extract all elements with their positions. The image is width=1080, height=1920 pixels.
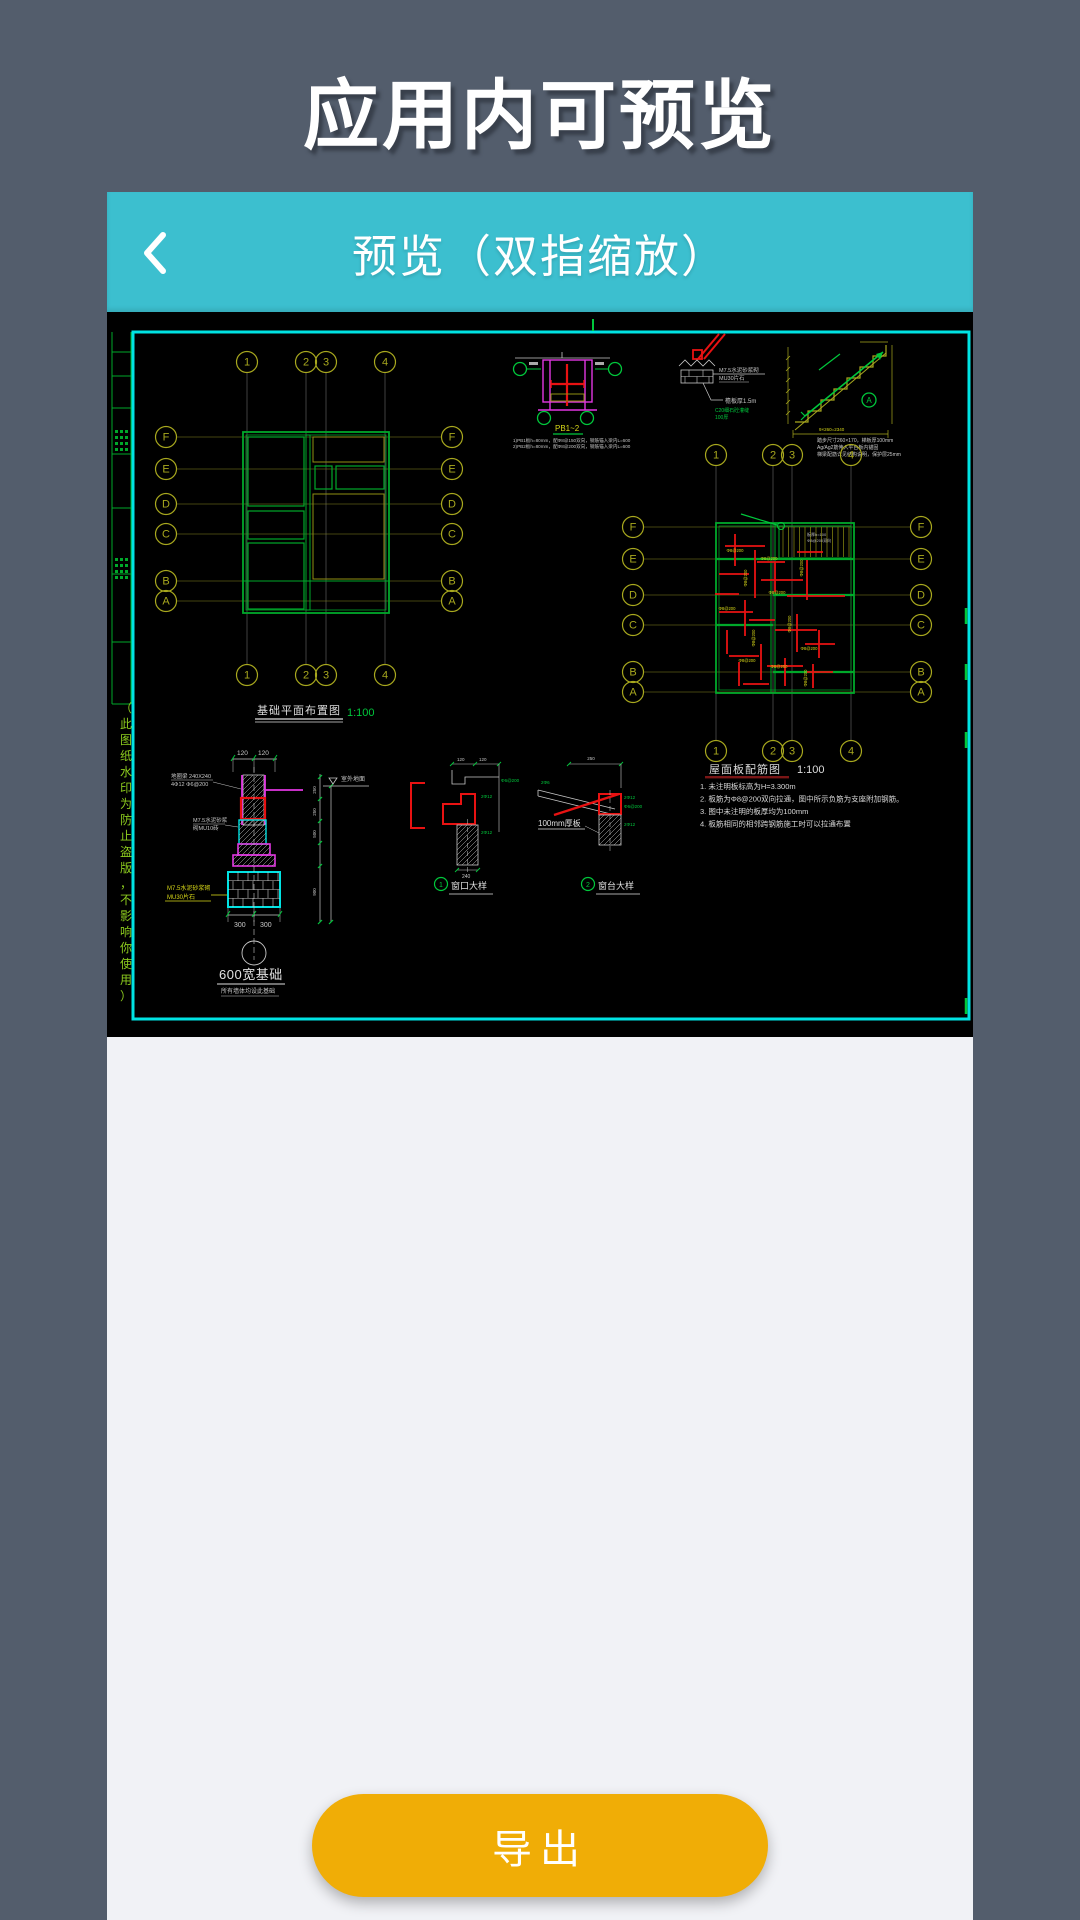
eave-detail: M7.5水泥砂浆砌MU30片石檐板厚1.5mC20细石砼灌缝100厚: [679, 334, 765, 421]
cad-text: 2)PB2板h=80mm，配Φ8@200双向，钢筋锚入梁内L=600: [513, 443, 631, 450]
cad-text: 3: [789, 746, 795, 758]
cad-text: B: [448, 576, 455, 588]
cad-text: B: [629, 667, 636, 679]
preview-header-title: 预览（双指缩放）: [352, 220, 728, 285]
watermark-char: 盗: [120, 844, 132, 859]
cad-rect: [120, 564, 123, 567]
cad-text: 板厚h=100: [807, 531, 827, 537]
watermark-char: 影: [120, 909, 132, 923]
cad-line: [262, 847, 270, 855]
cad-text: Φ6@200: [501, 778, 520, 783]
cad-text: C: [448, 529, 456, 541]
cad-rect: [336, 466, 384, 489]
cad-rect: [120, 430, 123, 433]
cad-line: [247, 844, 258, 855]
cad-text: Φ8@200: [739, 658, 757, 663]
cad-line: [257, 844, 268, 855]
cad-text: A: [448, 596, 456, 608]
cad-rect: [115, 448, 118, 451]
cad-text: F: [918, 522, 925, 534]
cad-text: 600宽基础: [219, 967, 283, 982]
watermark-char: 响: [120, 924, 132, 939]
cad-line: [599, 815, 604, 820]
preview-header: 预览（双指缩放）: [107, 192, 973, 312]
cad-text: Φ8@200: [771, 664, 789, 669]
cad-text: 踏步尺寸260×170，梯板厚100mm: [817, 437, 893, 444]
cad-rect: [120, 436, 123, 439]
cad-rect: [115, 436, 118, 439]
cad-line: [243, 775, 253, 785]
watermark-char: 不: [120, 893, 132, 907]
cad-text: 1: [439, 882, 443, 889]
cad-text: 窗台大样: [598, 880, 634, 891]
cad-text: 4: [382, 670, 388, 682]
cad-text: Φ8@200: [719, 606, 737, 611]
cad-text: E: [448, 464, 455, 476]
cad-polyline: [795, 345, 886, 422]
cad-rect: [313, 437, 384, 462]
cad-text: E: [162, 464, 169, 476]
cad-rect: [313, 494, 384, 579]
cad-text: C: [917, 620, 925, 632]
cad-text: A: [917, 687, 925, 699]
cad-text: Φ6@200: [624, 804, 643, 809]
foundation-section-detail: 120120300300600宽基础所有墙体均设此基础地圈梁 240X2404Φ…: [165, 750, 369, 996]
cad-text: 3: [789, 450, 795, 462]
cad-text: 2: [770, 746, 776, 758]
cad-rect: [115, 570, 118, 573]
cad-text: 1)PB1板h=80mm，配Φ8@150双向，钢筋锚入梁内L=600: [513, 437, 631, 444]
cad-rect: [248, 511, 304, 539]
cad-rect: [125, 576, 128, 579]
cad-text: M7.5水泥砂浆砌: [719, 366, 759, 374]
cad-text: B: [917, 667, 924, 679]
cad-rect: [125, 430, 128, 433]
cad-text: Φ8@200: [803, 669, 808, 687]
cad-line: [467, 854, 478, 865]
cad-line: [252, 844, 263, 855]
cad-text: 300: [234, 922, 246, 929]
cad-line: [247, 855, 258, 866]
cad-line: [213, 782, 241, 789]
cad-text: D: [629, 590, 637, 602]
cad-text: 1. 未注明板标高为H=3.300m: [700, 781, 796, 791]
foundation-plan-caption: 基础平面布置图1:100: [255, 704, 375, 722]
cad-text: 120: [457, 757, 465, 762]
cad-text: C: [629, 620, 637, 632]
foundation-plan: 11223344FFEEDDCCBBAA: [156, 352, 463, 686]
cad-text: 3: [323, 670, 329, 682]
cad-rect: [248, 543, 304, 609]
cad-rect: [115, 430, 118, 433]
cad-text: F: [630, 522, 637, 534]
cad-circle: [609, 363, 622, 376]
cad-circle: [581, 412, 594, 425]
cad-drawing[interactable]: （此图纸水印为防止盗版，不影响你使用）11223344FFEEDDCCBBAA基…: [107, 312, 973, 1037]
cad-text: 2Φ12: [481, 794, 493, 799]
cad-line: [604, 828, 621, 845]
cad-text: 4: [382, 357, 388, 369]
cad-text: M7.5水泥砂浆砌: [167, 884, 210, 892]
cad-text: 4Φ12 Φ6@200: [171, 782, 208, 788]
cad-text: 屋面板配筋图: [709, 762, 781, 776]
cad-text: 3. 图中未注明的板厚均为100mm: [700, 806, 808, 816]
cad-text: 室外地面: [341, 775, 365, 783]
watermark-char: 印: [120, 781, 132, 795]
cad-text: Φ8@200: [727, 548, 745, 553]
cad-line: [457, 825, 462, 830]
cad-line: [243, 775, 263, 795]
export-button[interactable]: 导出: [312, 1794, 768, 1897]
cad-text: Φ8@200: [787, 615, 792, 633]
cad-rect: [125, 442, 128, 445]
cad-text: A: [162, 596, 170, 608]
cad-text: A: [866, 396, 872, 405]
cad-line: [260, 838, 266, 844]
cad-text: 240: [462, 874, 471, 880]
cad-line: [250, 828, 266, 844]
cad-text: 4: [848, 450, 854, 462]
cad-text: 250: [587, 756, 595, 761]
cad-line: [599, 815, 609, 825]
cad-text: 砌MU10砖: [193, 824, 219, 832]
cad-text: C: [162, 529, 170, 541]
cad-rect: [125, 436, 128, 439]
watermark-char: ）: [120, 989, 132, 1003]
preview-card: 预览（双指缩放） （此图纸水印为防止盗版，不影响你使用）11223344FFEE…: [107, 192, 973, 1920]
cad-rect: [705, 776, 789, 778]
cad-polyline: [679, 360, 715, 366]
cad-text: 100厚: [715, 415, 728, 421]
cad-text: 基础平面布置图: [257, 704, 341, 717]
cad-line: [242, 844, 253, 855]
cad-rect: [529, 362, 538, 365]
cad-line: [267, 858, 275, 866]
cad-text: 250: [312, 808, 317, 816]
cad-line: [252, 855, 263, 866]
cad-text: MU30片石: [167, 893, 195, 901]
app-screen: 应用内可预览 预览（双指缩放） （此图纸水印为防止盗版，不影响你使用）11223…: [0, 0, 1080, 1920]
cad-text: Φ8@200: [761, 556, 779, 561]
cad-text: 250: [312, 786, 317, 794]
watermark-char: 图: [120, 733, 132, 747]
watermark-char: 此: [120, 717, 132, 731]
watermark-char: 版: [120, 861, 132, 875]
cad-circle: [538, 412, 551, 425]
cad-rect: [306, 435, 310, 610]
cad-text: 120: [237, 750, 248, 757]
cad-line: [240, 820, 264, 844]
cad-text: Φ8@200: [751, 629, 756, 647]
cad-text: 1: [244, 357, 250, 369]
cad-line: [237, 855, 248, 866]
cad-text: 500: [312, 830, 317, 838]
cad-line: [243, 775, 248, 780]
cad-polyline: [452, 770, 499, 784]
cad-rect: [315, 466, 332, 489]
cad-text: 9×260=2340: [819, 427, 845, 432]
sheet-title-strip: [112, 332, 131, 704]
cad-line: [819, 354, 840, 370]
cad-text: MU30片石: [719, 374, 745, 382]
cad-rect: [246, 435, 386, 610]
cad-text: 1: [713, 746, 719, 758]
cad-line: [257, 855, 268, 866]
cad-line: [472, 859, 478, 865]
cad-text: 120: [479, 757, 487, 762]
pb-slab-detail: PB1~21)PB1板h=80mm，配Φ8@150双向，钢筋锚入梁内L=6002…: [513, 352, 631, 450]
cad-text: C20细石砼灌缝: [715, 407, 749, 414]
cad-line: [225, 825, 238, 827]
cad-text: 4. 板筋相同的相邻跨钢筋施工时可以拉通布置: [700, 819, 851, 829]
preview-body: 导出: [107, 1037, 973, 1920]
cad-line: [262, 855, 273, 866]
cad-text: 2: [770, 450, 776, 462]
cad-text: 2: [586, 882, 590, 889]
sheet-border: [133, 319, 969, 1019]
cad-text: D: [448, 499, 456, 511]
cad-text: 1: [713, 450, 719, 462]
cad-line: [238, 844, 248, 854]
cad-text: 地圈梁 240X240: [171, 772, 211, 780]
cad-rect: [120, 576, 123, 579]
watermark-char: 用: [120, 973, 132, 987]
cad-line: [462, 849, 478, 865]
cad-text: Φ8@200: [743, 569, 748, 587]
cad-text: 梯梁配筋详见结构说明，保护层25mm: [817, 451, 901, 458]
cad-text: 120: [258, 750, 269, 757]
watermark-text: （此图纸水印为防止盗版，不影响你使用）: [120, 701, 132, 1003]
cad-text: PB1~2: [555, 424, 580, 433]
cad-rect: [120, 448, 123, 451]
roof-plan-caption: 屋面板配筋图1:1001. 未注明板标高为H=3.300m2. 板筋为Φ8@20…: [700, 762, 904, 829]
cad-text: Φ8@200: [769, 590, 787, 595]
cad-rect: [115, 442, 118, 445]
cad-line: [233, 855, 243, 865]
cad-text: 2Φ6: [541, 780, 550, 785]
cad-text: F: [163, 432, 170, 444]
cad-line: [554, 794, 619, 815]
cad-text: 3: [323, 357, 329, 369]
cad-text: F: [449, 432, 456, 444]
chevron-left-icon: [147, 235, 163, 271]
cad-line: [698, 334, 719, 359]
cad-text: E: [917, 554, 924, 566]
cad-text: D: [917, 590, 925, 602]
cad-text: 窗口大样: [451, 880, 487, 891]
cad-line: [242, 855, 253, 866]
cad-text: 900: [312, 888, 317, 896]
cad-rect: [125, 570, 128, 573]
cad-text: 2Φ12: [624, 822, 636, 827]
cad-text: 1:100: [347, 707, 375, 719]
watermark-char: 使: [120, 956, 132, 971]
window-lintel-outline: [443, 794, 475, 824]
cad-text: E: [629, 554, 636, 566]
cad-rect: [120, 558, 123, 561]
cad-line: [609, 833, 621, 845]
ground-level-icon: [329, 778, 337, 784]
cad-rect: [125, 564, 128, 567]
cad-rect: [125, 448, 128, 451]
cad-rect: [243, 432, 389, 613]
cad-text: M7.5水泥砂浆: [193, 816, 228, 824]
cad-text: 2Φ12: [624, 795, 636, 800]
cad-polyline: [411, 783, 425, 828]
watermark-char: 防: [120, 812, 132, 827]
cad-line: [585, 826, 599, 833]
watermark-char: 止: [120, 829, 132, 843]
cad-polyline: [801, 412, 805, 420]
cad-text: 300: [260, 922, 272, 929]
cad-text: 100mm厚板: [538, 818, 581, 828]
cad-rect: [125, 558, 128, 561]
cad-text: Φ8@200: [799, 559, 804, 577]
cad-text: 1: [244, 670, 250, 682]
watermark-char: 为: [120, 797, 132, 811]
cad-text: Φ8@200双向: [807, 537, 831, 543]
cad-rect: [115, 564, 118, 567]
cad-text: A: [629, 687, 637, 699]
page-title: 应用内可预览: [0, 54, 1080, 164]
cad-line: [255, 833, 266, 844]
cad-line: [599, 815, 619, 835]
cad-text: 2: [303, 670, 309, 682]
watermark-char: 水: [120, 765, 132, 779]
cad-text: 檐板厚1.5m: [725, 397, 756, 405]
cad-circle: [514, 363, 527, 376]
cad-preview[interactable]: （此图纸水印为防止盗版，不影响你使用）11223344FFEEDDCCBBAA基…: [107, 312, 973, 1037]
watermark-char: 纸: [120, 749, 132, 763]
cad-line: [704, 334, 725, 359]
cad-text: 2. 板筋为Φ8@200双向拉通，图中所示负筋为支座附加钢筋。: [700, 794, 904, 804]
back-button[interactable]: [141, 230, 169, 276]
cad-text: 4: [848, 746, 854, 758]
watermark-char: （: [120, 701, 132, 715]
cad-text: 2Φ12: [481, 830, 493, 835]
cad-text: 1:100: [797, 764, 825, 776]
cad-text: B: [162, 576, 169, 588]
cad-text: 所有墙体均设此基础: [221, 987, 275, 995]
cad-polyline: [703, 383, 723, 400]
window-jamb-detail: 120120Φ6@2002Φ122Φ122401窗口大样: [411, 757, 520, 894]
cad-line: [795, 353, 886, 430]
stair-detail: 9×260=2340A踏步尺寸260×170，梯板厚100mmAg/Ag2筋伸入…: [786, 342, 901, 458]
cad-watermark: （此图纸水印为防止盗版，不影响你使用）: [120, 701, 132, 1003]
cad-rect: [115, 558, 118, 561]
cad-rect: [595, 362, 604, 365]
cad-line: [457, 825, 477, 845]
cad-rect: [115, 576, 118, 579]
cad-text: D: [162, 499, 170, 511]
watermark-char: ，: [120, 877, 132, 891]
cad-text: Φ8@200: [801, 646, 819, 651]
cad-rect: [248, 437, 304, 506]
watermark-char: 你: [120, 941, 132, 955]
cad-rect: [120, 570, 123, 573]
cad-text: 2: [303, 357, 309, 369]
cad-line: [599, 818, 621, 840]
cad-rect: [120, 442, 123, 445]
window-sill-detail: 2502Φ62Φ12Φ6@2002Φ12100mm厚板2窗台大样: [538, 756, 643, 894]
roof-rebar-plan: 11223344FFEEDDCCBBAA板厚h=100Φ8@200双向Φ8@20…: [623, 445, 932, 762]
cad-line: [457, 825, 467, 835]
